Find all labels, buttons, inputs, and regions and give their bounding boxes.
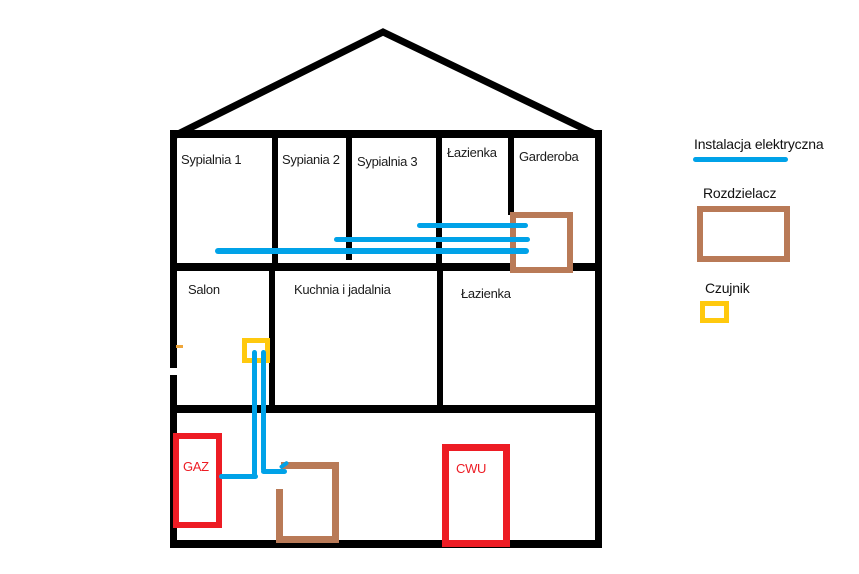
room-label-sypialnia-1: Sypialnia 1: [181, 153, 241, 167]
cwu-label: CWU: [456, 462, 486, 476]
legend-label-distributor: Rozdzielacz: [703, 185, 776, 201]
room-label-sypialnia-3: Sypialnia 3: [357, 155, 417, 169]
f2-wall-kuchnia-lazienka: [437, 271, 443, 407]
legend-label-sensor: Czujnik: [705, 280, 750, 296]
wall-gap-artifact: [169, 368, 178, 375]
f1-wall-lazienka-garderoba: [508, 138, 514, 215]
orange-dash-artifact: [176, 345, 183, 348]
distributor-box-basement-top: [281, 462, 339, 469]
f1-wall-sypialnia1-sypiania2: [272, 138, 278, 265]
cable-branch-to-gaz: [219, 474, 258, 479]
cable-riser-right: [261, 350, 266, 472]
room-label-kuchnia: Kuchnia i jadalnia: [294, 283, 391, 297]
cable-bedroom2-run: [334, 237, 530, 242]
legend-electrical-line-swatch: [693, 157, 788, 162]
distributor-box-garderoba: [510, 212, 573, 273]
legend-sensor-swatch: [700, 301, 729, 323]
legend-label-electrical: Instalacja elektryczna: [694, 136, 823, 152]
gaz-box: [173, 433, 222, 528]
gaz-label: GAZ: [183, 460, 209, 474]
cwu-box: [442, 444, 510, 547]
bottom-wall: [170, 540, 602, 548]
distributor-box-basement-right: [332, 462, 339, 543]
distributor-box-basement-left: [276, 489, 283, 543]
ceiling-line: [170, 130, 602, 138]
house-electrical-diagram: Sypialnia 1 Sypiania 2 Sypialnia 3 Łazie…: [0, 0, 859, 574]
room-label-lazienka-top: Łazienka: [447, 146, 497, 160]
room-label-salon: Salon: [188, 283, 220, 297]
cable-riser-left: [252, 350, 257, 479]
floor2-divider: [170, 405, 602, 413]
cable-branch-to-distributor: [261, 469, 287, 474]
cable-bedroom1-run: [215, 248, 529, 254]
room-label-lazienka-mid: Łazienka: [461, 287, 511, 301]
f1-wall-sypialnia3-lazienka: [436, 138, 442, 265]
distributor-box-basement-bottom: [276, 536, 339, 543]
cable-bedroom3-run: [417, 223, 528, 228]
legend-distributor-swatch: [697, 206, 790, 262]
roof-outline: [174, 32, 599, 136]
room-label-sypiania-2: Sypiania 2: [282, 153, 340, 167]
room-label-garderoba: Garderoba: [519, 150, 578, 164]
wall-right: [595, 130, 602, 548]
